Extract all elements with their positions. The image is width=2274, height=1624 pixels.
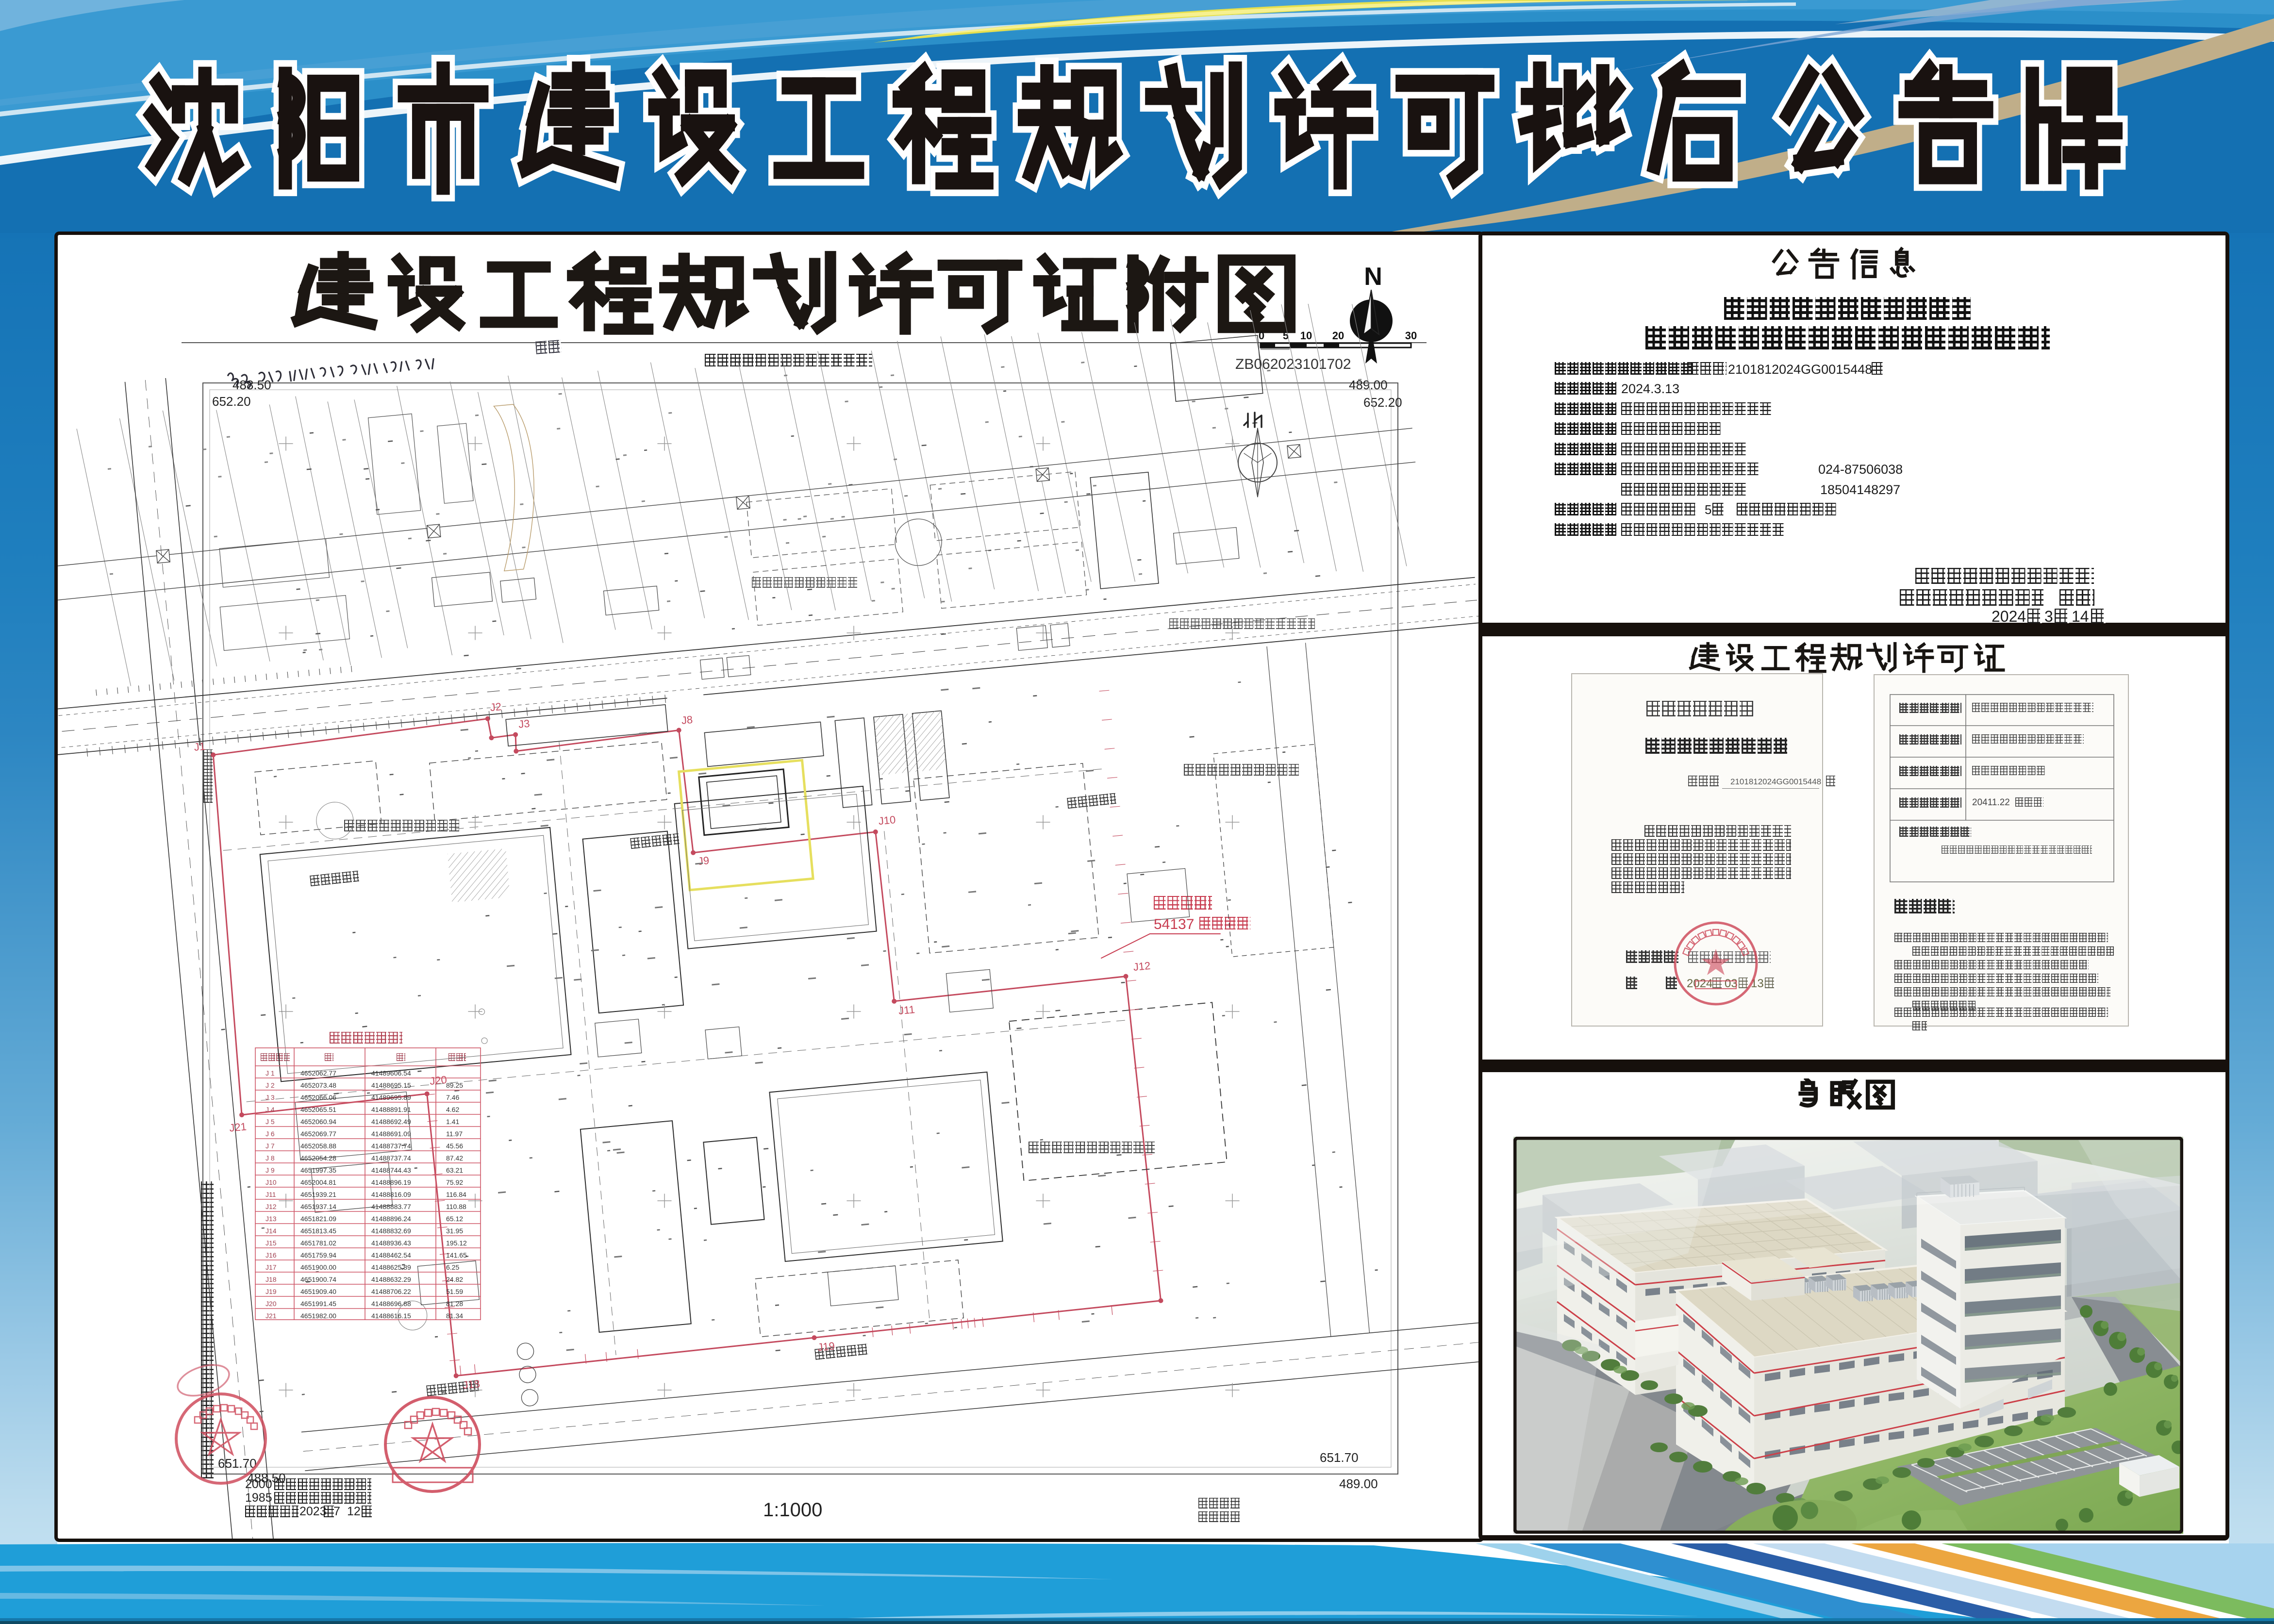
svg-text:4651939.21: 4651939.21 (300, 1191, 336, 1198)
svg-text:J13: J13 (266, 1215, 277, 1223)
svg-text:195.12: 195.12 (446, 1239, 467, 1247)
svg-text:4651997.35: 4651997.35 (300, 1166, 336, 1174)
svg-text:41488737.74: 41488737.74 (371, 1154, 411, 1162)
svg-text:4651991.45: 4651991.45 (300, 1300, 336, 1308)
svg-text:J2: J2 (490, 700, 502, 713)
svg-text:41488616.15: 41488616.15 (371, 1312, 411, 1320)
svg-text:41488462.54: 41488462.54 (371, 1251, 411, 1259)
svg-text:J21: J21 (229, 1120, 247, 1134)
svg-text:4651781.02: 4651781.02 (300, 1239, 336, 1247)
svg-text:7: 7 (333, 1505, 340, 1518)
svg-text:4652073.48: 4652073.48 (300, 1081, 336, 1089)
svg-text:41488696.88: 41488696.88 (371, 1300, 411, 1308)
svg-text:4651900.00: 4651900.00 (300, 1263, 336, 1271)
svg-text:J1: J1 (194, 740, 206, 753)
svg-text:J17: J17 (266, 1263, 277, 1271)
svg-text:41488692.49: 41488692.49 (371, 1118, 411, 1126)
svg-text:41488891.91: 41488891.91 (371, 1106, 411, 1113)
svg-text:4651813.45: 4651813.45 (300, 1227, 336, 1235)
svg-text:41488632.29: 41488632.29 (371, 1276, 411, 1283)
svg-text:4651759.94: 4651759.94 (300, 1251, 336, 1259)
svg-text:4652065.51: 4652065.51 (300, 1106, 336, 1113)
svg-text:51.59: 51.59 (446, 1288, 463, 1295)
svg-text:J8: J8 (681, 713, 693, 727)
svg-text:J 7: J 7 (266, 1142, 275, 1150)
svg-text:41488936.43: 41488936.43 (371, 1239, 411, 1247)
svg-text:41488832.69: 41488832.69 (371, 1227, 411, 1235)
svg-text:141.65: 141.65 (446, 1251, 467, 1259)
svg-text:4651900.74: 4651900.74 (300, 1276, 336, 1283)
svg-text:41488691.09: 41488691.09 (371, 1130, 411, 1138)
svg-text:11.97: 11.97 (446, 1130, 463, 1138)
svg-text:4651982.00: 4651982.00 (300, 1312, 336, 1320)
svg-text:651.70: 651.70 (218, 1456, 257, 1471)
svg-text:J3: J3 (518, 717, 530, 730)
svg-text:J10: J10 (878, 813, 896, 827)
svg-text:J18: J18 (462, 1377, 481, 1391)
svg-text:7.46: 7.46 (446, 1094, 459, 1101)
svg-text:1985: 1985 (245, 1491, 272, 1505)
svg-text:31.95: 31.95 (446, 1227, 463, 1235)
svg-text:652.20: 652.20 (1363, 395, 1402, 410)
svg-text:J20: J20 (266, 1300, 277, 1308)
svg-text:J 3: J 3 (266, 1094, 275, 1101)
svg-text:41488706.22: 41488706.22 (371, 1288, 411, 1295)
svg-text:1.41: 1.41 (446, 1118, 459, 1126)
svg-text:24.82: 24.82 (446, 1276, 463, 1283)
svg-text:J18: J18 (266, 1276, 277, 1283)
svg-text:75.92: 75.92 (446, 1178, 463, 1186)
svg-text:81.34: 81.34 (446, 1312, 463, 1320)
svg-text:4652069.77: 4652069.77 (300, 1130, 336, 1138)
svg-text:J 9: J 9 (266, 1166, 275, 1174)
svg-text:J 1: J 1 (266, 1069, 275, 1077)
svg-text:41489606.54: 41489606.54 (371, 1069, 411, 1077)
svg-text:41488744.43: 41488744.43 (371, 1166, 411, 1174)
svg-text:1:1000: 1:1000 (763, 1499, 822, 1521)
svg-text:4652060.94: 4652060.94 (300, 1118, 336, 1126)
svg-text:J 8: J 8 (266, 1154, 275, 1162)
svg-text:4652066.06: 4652066.06 (300, 1094, 336, 1101)
svg-text:41488625.89: 41488625.89 (371, 1263, 411, 1271)
svg-text:J12: J12 (266, 1203, 277, 1210)
svg-text:41488883.77: 41488883.77 (371, 1203, 411, 1210)
svg-text:J 2: J 2 (266, 1081, 275, 1089)
svg-text:6.25: 6.25 (446, 1263, 459, 1271)
svg-text:65.12: 65.12 (446, 1215, 463, 1223)
svg-text:489.00: 489.00 (1349, 378, 1388, 392)
svg-text:J21: J21 (266, 1312, 277, 1320)
svg-text:4652004.81: 4652004.81 (300, 1178, 336, 1186)
svg-text:63.21: 63.21 (446, 1166, 463, 1174)
svg-text:45.56: 45.56 (446, 1142, 463, 1150)
svg-text:87.42: 87.42 (446, 1154, 463, 1162)
svg-text:J11: J11 (266, 1191, 276, 1198)
svg-text:41488816.09: 41488816.09 (371, 1191, 411, 1198)
svg-text:4651821.09: 4651821.09 (300, 1215, 336, 1223)
svg-text:4652054.28: 4652054.28 (300, 1154, 336, 1162)
svg-text:J20: J20 (429, 1074, 448, 1087)
svg-text:41489695.89: 41489695.89 (371, 1094, 411, 1101)
svg-text:4651937.14: 4651937.14 (300, 1203, 336, 1210)
svg-text:J12: J12 (1133, 960, 1151, 973)
svg-text:652.20: 652.20 (212, 394, 251, 409)
svg-text:J 5: J 5 (266, 1118, 275, 1126)
svg-text:2023: 2023 (299, 1505, 327, 1518)
svg-text:89.25: 89.25 (446, 1081, 463, 1089)
svg-text:J16: J16 (266, 1251, 277, 1259)
svg-text:110.88: 110.88 (446, 1203, 466, 1210)
svg-text:J 4: J 4 (266, 1106, 275, 1113)
svg-text:12: 12 (347, 1505, 361, 1518)
svg-text:41488896.24: 41488896.24 (371, 1215, 411, 1223)
svg-text:ZB062023101702: ZB062023101702 (1235, 356, 1351, 372)
svg-text:4.62: 4.62 (446, 1106, 459, 1113)
svg-text:J19: J19 (266, 1288, 277, 1295)
svg-text:116.84: 116.84 (446, 1191, 466, 1198)
svg-text:651.70: 651.70 (1320, 1450, 1359, 1465)
svg-text:J9: J9 (697, 854, 710, 867)
svg-text:4652062.77: 4652062.77 (300, 1069, 336, 1077)
svg-text:J15: J15 (266, 1239, 277, 1247)
svg-text:54137: 54137 (1154, 916, 1194, 932)
svg-text:J 6: J 6 (266, 1130, 275, 1138)
svg-text:2000: 2000 (245, 1477, 272, 1491)
svg-text:J19: J19 (817, 1340, 835, 1353)
svg-text:J10: J10 (266, 1178, 277, 1186)
svg-text:4652058.88: 4652058.88 (300, 1142, 336, 1150)
svg-text:81.28: 81.28 (446, 1300, 463, 1308)
svg-text:489.00: 489.00 (1339, 1476, 1378, 1491)
svg-text:41488695.15: 41488695.15 (371, 1081, 411, 1089)
svg-text:J14: J14 (266, 1227, 277, 1235)
svg-text:41488896.19: 41488896.19 (371, 1178, 411, 1186)
svg-text:4651909.40: 4651909.40 (300, 1288, 336, 1295)
svg-text:41488737.74: 41488737.74 (371, 1142, 411, 1150)
